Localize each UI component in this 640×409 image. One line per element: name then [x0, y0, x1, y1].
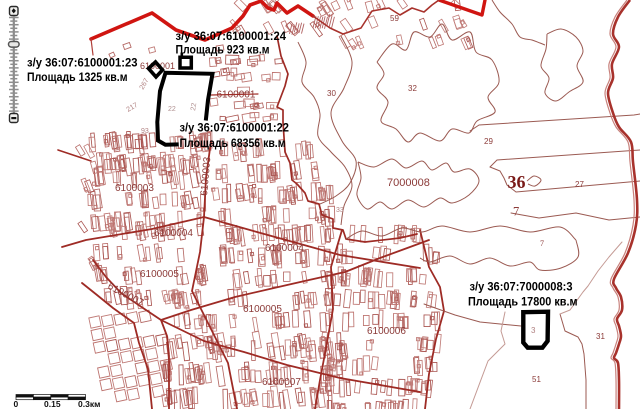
svg-text:93: 93	[141, 128, 149, 135]
svg-text:22: 22	[190, 102, 198, 111]
svg-text:7: 7	[513, 205, 519, 219]
svg-text:22: 22	[168, 106, 176, 113]
svg-text:6100005: 6100005	[243, 304, 282, 315]
svg-text:з/у 36:07:6100001:24: з/у 36:07:6100001:24	[176, 30, 287, 43]
svg-text:7: 7	[540, 239, 544, 248]
svg-text:6100003: 6100003	[115, 183, 154, 194]
svg-text:з/у 36:07:6100001:22: з/у 36:07:6100001:22	[180, 122, 290, 135]
svg-text:Площадь 17800 кв.м: Площадь 17800 кв.м	[468, 296, 578, 309]
svg-text:31: 31	[596, 332, 605, 341]
svg-text:0.3км: 0.3км	[78, 399, 100, 409]
svg-text:29: 29	[484, 137, 493, 146]
svg-text:3: 3	[531, 326, 536, 335]
svg-text:6100004: 6100004	[265, 243, 304, 254]
svg-text:Площадь 1325 кв.м: Площадь 1325 кв.м	[27, 71, 128, 84]
svg-text:36: 36	[508, 172, 526, 192]
svg-text:7000008: 7000008	[387, 177, 430, 189]
svg-text:6100006: 6100006	[367, 326, 406, 337]
svg-text:6100004: 6100004	[154, 228, 193, 239]
svg-text:30: 30	[327, 89, 336, 98]
svg-text:Площадь 68356 кв.м: Площадь 68356 кв.м	[180, 137, 286, 150]
svg-text:з/у 36:07:6100001:23: з/у 36:07:6100001:23	[27, 57, 138, 70]
svg-text:33: 33	[336, 207, 344, 214]
svg-text:0: 0	[14, 399, 19, 409]
svg-text:27: 27	[575, 180, 584, 189]
svg-text:Площадь 923 кв.м: Площадь 923 кв.м	[176, 44, 270, 57]
svg-text:з/у 36:07:7000008:3: з/у 36:07:7000008:3	[470, 281, 574, 294]
svg-text:6100005: 6100005	[140, 269, 179, 280]
svg-text:32: 32	[408, 84, 417, 93]
svg-text:6100007: 6100007	[262, 377, 301, 388]
svg-text:0.15: 0.15	[44, 399, 61, 409]
svg-text:51: 51	[532, 375, 541, 384]
svg-text:59: 59	[390, 14, 399, 23]
